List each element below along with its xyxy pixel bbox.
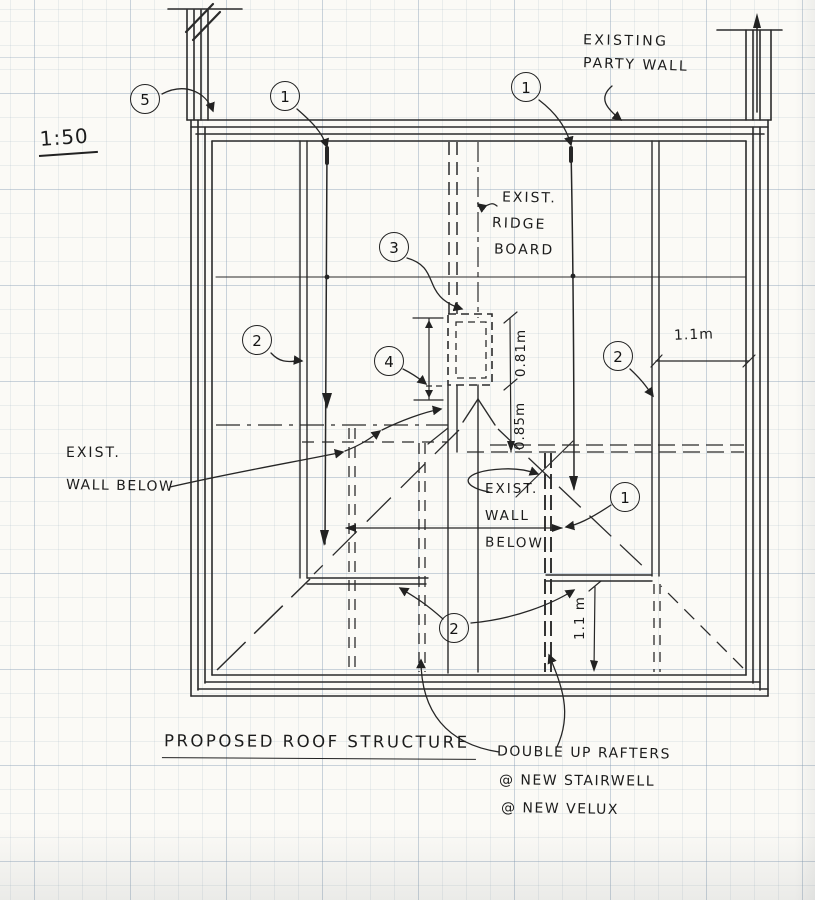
note-double-up-rafters-line1: DOUBLE UP RAFTERS [497, 744, 671, 762]
label-exist-wall-below-left-line1: EXIST. [66, 446, 121, 461]
label-exist-wall-below-mid-line3: BELOW [485, 535, 544, 551]
label-exist-wall-below-mid-line2: WALL [485, 509, 530, 524]
label-exist-ridge-line1: EXIST. [502, 191, 557, 207]
callout-1-mid: 1 [610, 482, 640, 512]
hidden-dashed-lines [216, 142, 744, 672]
callout-4: 4 [374, 346, 404, 376]
dimension-eaves-width: 1.1m [674, 327, 714, 344]
note-double-up-rafters-line3: @ NEW VELUX [501, 801, 619, 818]
dimension-stair-right: 1.1 m [573, 586, 591, 650]
label-exist-wall-below-left-line2: WALL BELOW [66, 478, 175, 495]
dimension-velux-upper: 0.81m [514, 321, 532, 385]
label-existing-party-wall-line1: EXISTING [583, 33, 669, 50]
section-lines [320, 13, 761, 546]
label-exist-wall-below-mid-line1: EXIST. [485, 482, 538, 497]
callout-2-right: 2 [603, 341, 633, 371]
dimension-velux-lower: 0.85m [513, 394, 531, 458]
callout-3: 3 [379, 232, 409, 262]
callout-2-bottom: 2 [439, 613, 469, 643]
label-exist-ridge-line3: BOARD [494, 242, 554, 258]
label-exist-ridge-line2: RIDGE [492, 216, 547, 233]
callout-1-top-right: 1 [511, 72, 541, 102]
callout-2-left: 2 [242, 325, 272, 355]
callout-5: 5 [130, 84, 160, 114]
drawing-title: PROPOSED ROOF STRUCTURE [162, 732, 476, 760]
scale-label: 1:50 [37, 124, 98, 157]
roof-plan-linework [0, 0, 815, 900]
callout-1-top-left: 1 [270, 81, 300, 111]
note-double-up-rafters-line2: @ NEW STAIRWELL [499, 773, 655, 790]
